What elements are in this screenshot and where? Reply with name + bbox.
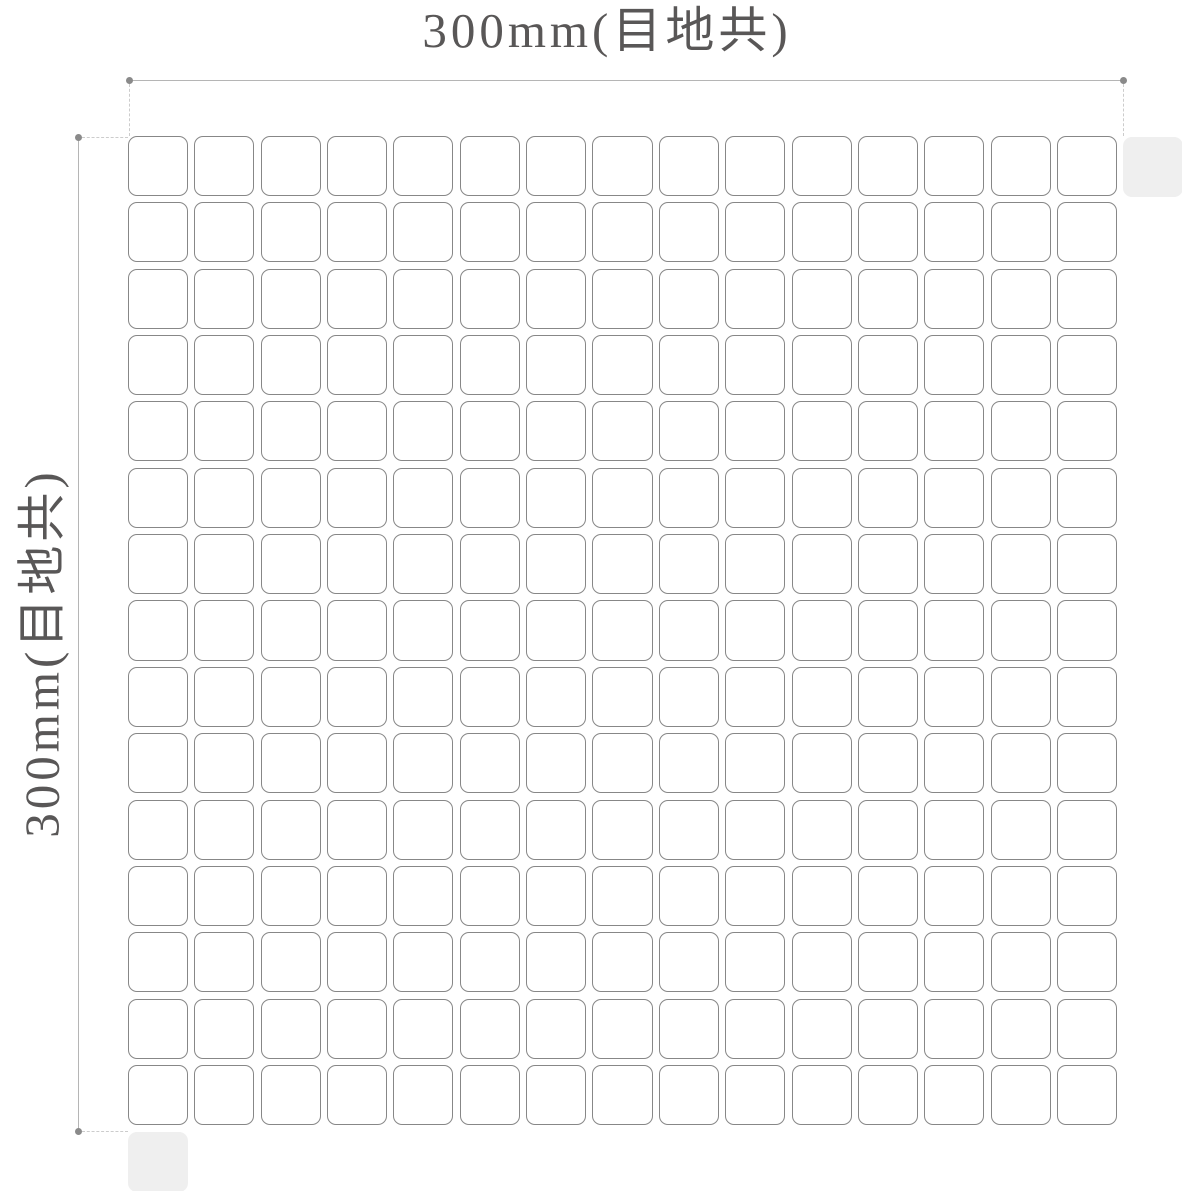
tile <box>261 468 321 528</box>
tile <box>991 1065 1051 1125</box>
tile <box>128 600 188 660</box>
tile <box>659 866 719 926</box>
tile <box>858 600 918 660</box>
tile <box>194 468 254 528</box>
tile <box>858 932 918 992</box>
tile <box>858 136 918 196</box>
tile <box>261 932 321 992</box>
tile <box>725 202 785 262</box>
tile <box>194 667 254 727</box>
tile <box>327 866 387 926</box>
tile <box>924 999 984 1059</box>
extension-line <box>129 84 130 136</box>
tile <box>460 136 520 196</box>
tile <box>393 733 453 793</box>
tile <box>393 335 453 395</box>
adjacent-sheet-tile-bottom-left <box>128 1132 188 1191</box>
tile <box>858 1065 918 1125</box>
tile <box>460 800 520 860</box>
tile <box>393 401 453 461</box>
tile <box>393 999 453 1059</box>
tile <box>991 401 1051 461</box>
tile <box>991 999 1051 1059</box>
tile <box>792 800 852 860</box>
tile <box>261 136 321 196</box>
tile <box>592 269 652 329</box>
tile <box>128 468 188 528</box>
tile <box>393 932 453 992</box>
tile <box>1057 269 1117 329</box>
tile <box>128 667 188 727</box>
tile <box>1057 866 1117 926</box>
tile <box>327 800 387 860</box>
tile <box>792 468 852 528</box>
tile <box>261 534 321 594</box>
tile <box>792 269 852 329</box>
tile <box>1057 335 1117 395</box>
tile <box>659 932 719 992</box>
tile <box>526 269 586 329</box>
tile <box>659 733 719 793</box>
tile <box>460 733 520 793</box>
tile <box>725 733 785 793</box>
tile <box>725 999 785 1059</box>
tile <box>792 600 852 660</box>
tile <box>194 600 254 660</box>
tile <box>924 600 984 660</box>
tile <box>991 600 1051 660</box>
tile <box>725 534 785 594</box>
tile <box>128 733 188 793</box>
tile <box>792 999 852 1059</box>
tile <box>526 600 586 660</box>
tile <box>526 1065 586 1125</box>
tile <box>592 136 652 196</box>
tile <box>128 269 188 329</box>
tile <box>659 136 719 196</box>
dimension-endpoint-dot <box>1120 77 1127 84</box>
left-dimension-line <box>78 137 79 1131</box>
tile <box>1057 667 1117 727</box>
tile <box>1057 202 1117 262</box>
tile <box>924 733 984 793</box>
tile <box>261 733 321 793</box>
tile <box>1057 468 1117 528</box>
tile <box>1057 733 1117 793</box>
tile <box>1057 401 1117 461</box>
tile <box>261 866 321 926</box>
tile <box>526 800 586 860</box>
tile <box>194 932 254 992</box>
tile <box>659 600 719 660</box>
tile <box>924 932 984 992</box>
tile <box>924 335 984 395</box>
dimension-endpoint-dot <box>75 1128 82 1135</box>
tile <box>526 468 586 528</box>
tile <box>792 136 852 196</box>
adjacent-sheet-tile-top-right <box>1123 137 1182 197</box>
tile <box>858 999 918 1059</box>
tile <box>526 932 586 992</box>
tile <box>261 800 321 860</box>
tile <box>858 667 918 727</box>
tile <box>659 534 719 594</box>
tile <box>659 1065 719 1125</box>
tile <box>327 667 387 727</box>
tile <box>128 202 188 262</box>
tile <box>592 733 652 793</box>
tile <box>194 999 254 1059</box>
tile <box>592 202 652 262</box>
tile <box>991 202 1051 262</box>
tile <box>924 269 984 329</box>
tile <box>592 866 652 926</box>
tile <box>128 1065 188 1125</box>
tile <box>991 866 1051 926</box>
tile <box>261 401 321 461</box>
extension-line <box>82 137 128 138</box>
tile <box>128 335 188 395</box>
tile <box>327 932 387 992</box>
tile <box>659 335 719 395</box>
tile <box>991 733 1051 793</box>
tile <box>327 202 387 262</box>
tile <box>1057 534 1117 594</box>
tile <box>194 136 254 196</box>
tile <box>327 1065 387 1125</box>
tile <box>327 468 387 528</box>
tile <box>858 269 918 329</box>
tile <box>261 335 321 395</box>
tile <box>194 534 254 594</box>
tile <box>393 468 453 528</box>
tile <box>261 667 321 727</box>
tile <box>659 202 719 262</box>
tile <box>526 335 586 395</box>
tile <box>261 202 321 262</box>
extension-line <box>1123 84 1124 136</box>
tile <box>194 202 254 262</box>
tile <box>592 600 652 660</box>
tile <box>858 800 918 860</box>
tile <box>393 269 453 329</box>
tile <box>991 800 1051 860</box>
tile <box>725 866 785 926</box>
tile <box>460 202 520 262</box>
tile-grid <box>128 136 1117 1125</box>
dimension-endpoint-dot <box>75 134 82 141</box>
tile <box>526 401 586 461</box>
tile <box>725 401 785 461</box>
tile <box>991 667 1051 727</box>
tile <box>1057 932 1117 992</box>
tile <box>526 136 586 196</box>
tile <box>858 733 918 793</box>
tile <box>261 269 321 329</box>
tile <box>526 733 586 793</box>
tile <box>991 335 1051 395</box>
dimension-endpoint-dot <box>126 77 133 84</box>
tile <box>659 269 719 329</box>
tile <box>128 866 188 926</box>
tile <box>924 800 984 860</box>
tile <box>725 600 785 660</box>
tile <box>327 335 387 395</box>
tile <box>1057 800 1117 860</box>
tile <box>592 335 652 395</box>
tile <box>460 600 520 660</box>
tile <box>128 401 188 461</box>
tile <box>792 202 852 262</box>
tile <box>991 468 1051 528</box>
tile <box>792 733 852 793</box>
tile <box>1057 600 1117 660</box>
tile <box>194 401 254 461</box>
tile <box>460 468 520 528</box>
top-dimension-line <box>129 80 1123 81</box>
tile <box>792 866 852 926</box>
tile <box>924 401 984 461</box>
top-dimension-label: 300mm(目地共) <box>422 6 791 55</box>
tile <box>991 534 1051 594</box>
tile <box>592 999 652 1059</box>
tile <box>128 932 188 992</box>
tile <box>327 534 387 594</box>
tile <box>659 401 719 461</box>
tile <box>460 999 520 1059</box>
tile <box>128 534 188 594</box>
tile <box>924 202 984 262</box>
tile <box>460 1065 520 1125</box>
tile <box>194 269 254 329</box>
tile <box>792 667 852 727</box>
tile <box>792 401 852 461</box>
tile <box>1057 999 1117 1059</box>
tile <box>327 136 387 196</box>
tile <box>327 401 387 461</box>
tile <box>460 534 520 594</box>
tile <box>858 866 918 926</box>
tile <box>725 468 785 528</box>
tile <box>393 202 453 262</box>
tile <box>792 1065 852 1125</box>
tile <box>592 932 652 992</box>
tile <box>725 136 785 196</box>
tile <box>460 335 520 395</box>
tile <box>128 999 188 1059</box>
tile <box>792 335 852 395</box>
tile <box>128 800 188 860</box>
tile <box>725 800 785 860</box>
left-dimension-label: 300mm(目地共) <box>18 468 67 837</box>
tile <box>725 667 785 727</box>
tile <box>194 800 254 860</box>
tile <box>592 800 652 860</box>
tile <box>659 800 719 860</box>
tile <box>393 534 453 594</box>
tile <box>327 733 387 793</box>
tile <box>858 335 918 395</box>
tile <box>526 534 586 594</box>
tile <box>526 866 586 926</box>
tile <box>659 667 719 727</box>
tile <box>460 667 520 727</box>
tile <box>460 401 520 461</box>
tile <box>924 667 984 727</box>
tile <box>592 468 652 528</box>
tile <box>858 534 918 594</box>
tile <box>327 269 387 329</box>
tile <box>327 999 387 1059</box>
tile <box>526 667 586 727</box>
tile <box>128 136 188 196</box>
tile <box>393 136 453 196</box>
tile <box>393 866 453 926</box>
tile <box>194 733 254 793</box>
tile-sheet-diagram: 300mm(目地共) 300mm(目地共) <box>0 0 1182 1191</box>
tile <box>858 202 918 262</box>
tile <box>194 1065 254 1125</box>
tile <box>991 269 1051 329</box>
tile <box>858 468 918 528</box>
tile <box>659 999 719 1059</box>
tile <box>194 335 254 395</box>
tile <box>1057 136 1117 196</box>
tile <box>924 866 984 926</box>
tile <box>924 136 984 196</box>
tile <box>261 1065 321 1125</box>
tile <box>261 999 321 1059</box>
tile <box>327 600 387 660</box>
tile <box>460 269 520 329</box>
tile <box>261 600 321 660</box>
tile <box>725 932 785 992</box>
tile <box>792 534 852 594</box>
extension-line <box>82 1131 128 1132</box>
tile <box>393 600 453 660</box>
tile <box>592 534 652 594</box>
tile <box>393 667 453 727</box>
tile <box>592 1065 652 1125</box>
tile <box>924 534 984 594</box>
tile <box>526 202 586 262</box>
tile <box>592 401 652 461</box>
tile <box>991 932 1051 992</box>
tile <box>991 136 1051 196</box>
tile <box>725 335 785 395</box>
tile <box>924 468 984 528</box>
tile <box>194 866 254 926</box>
tile <box>460 932 520 992</box>
tile <box>1057 1065 1117 1125</box>
tile <box>393 1065 453 1125</box>
tile <box>393 800 453 860</box>
tile <box>592 667 652 727</box>
tile <box>526 999 586 1059</box>
tile <box>725 1065 785 1125</box>
tile <box>725 269 785 329</box>
tile <box>924 1065 984 1125</box>
tile <box>792 932 852 992</box>
tile <box>460 866 520 926</box>
tile <box>858 401 918 461</box>
tile <box>659 468 719 528</box>
